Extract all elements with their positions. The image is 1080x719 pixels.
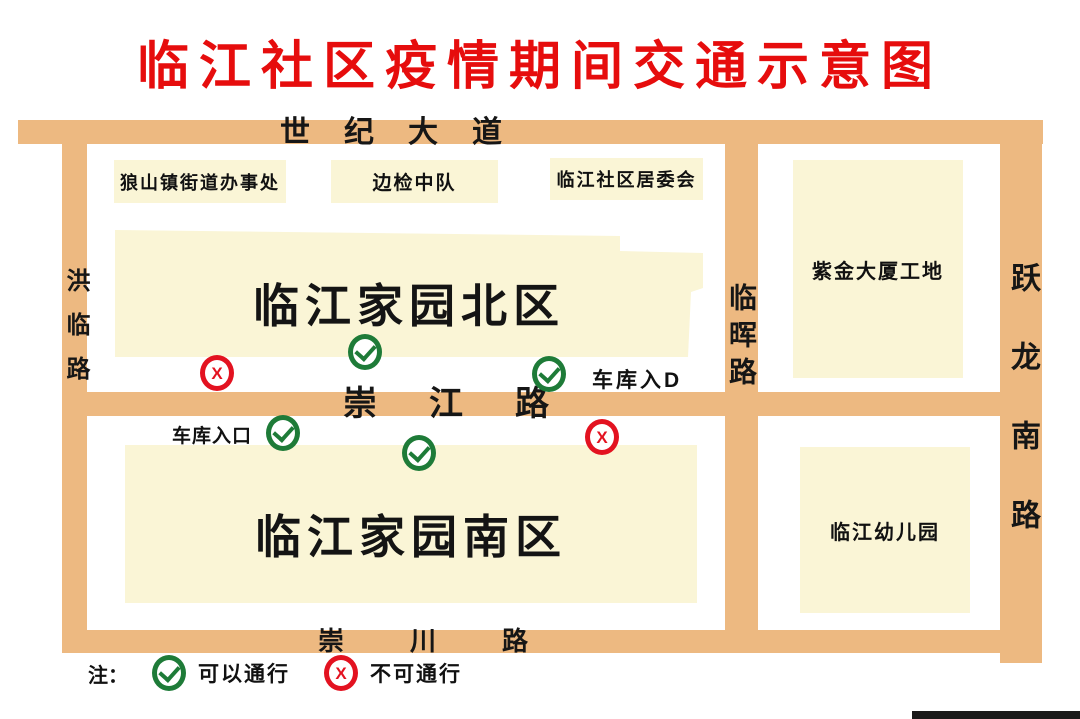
pass-legend-icon	[152, 655, 186, 691]
traffic-map: 临江社区疫情期间交通示意图 世纪大道 崇江路 崇川路 洪临路 临晖路 跃龙南路 …	[0, 0, 1080, 719]
markers-layer: XX	[0, 0, 1080, 719]
check-icon	[408, 440, 430, 463]
legend-note: 注：	[88, 659, 128, 688]
legend-pass-label: 可以通行	[198, 658, 290, 688]
no-pass-legend-icon: X	[324, 655, 358, 691]
x-icon: X	[596, 429, 607, 446]
legend-no-pass-label: 不可通行	[370, 658, 462, 688]
pass-marker	[266, 415, 300, 451]
check-icon	[538, 361, 560, 384]
x-icon: X	[211, 365, 222, 382]
check-icon	[354, 339, 376, 362]
pass-marker	[348, 334, 382, 370]
x-icon: X	[335, 665, 346, 682]
pass-marker	[532, 356, 566, 392]
pass-marker	[402, 435, 436, 471]
page-edge-bar	[912, 711, 1080, 719]
no-pass-marker: X	[585, 419, 619, 455]
no-pass-marker: X	[200, 355, 234, 391]
check-icon	[272, 420, 294, 443]
legend: 注： 可以通行 X 不可通行	[88, 654, 462, 692]
check-icon	[158, 660, 180, 683]
